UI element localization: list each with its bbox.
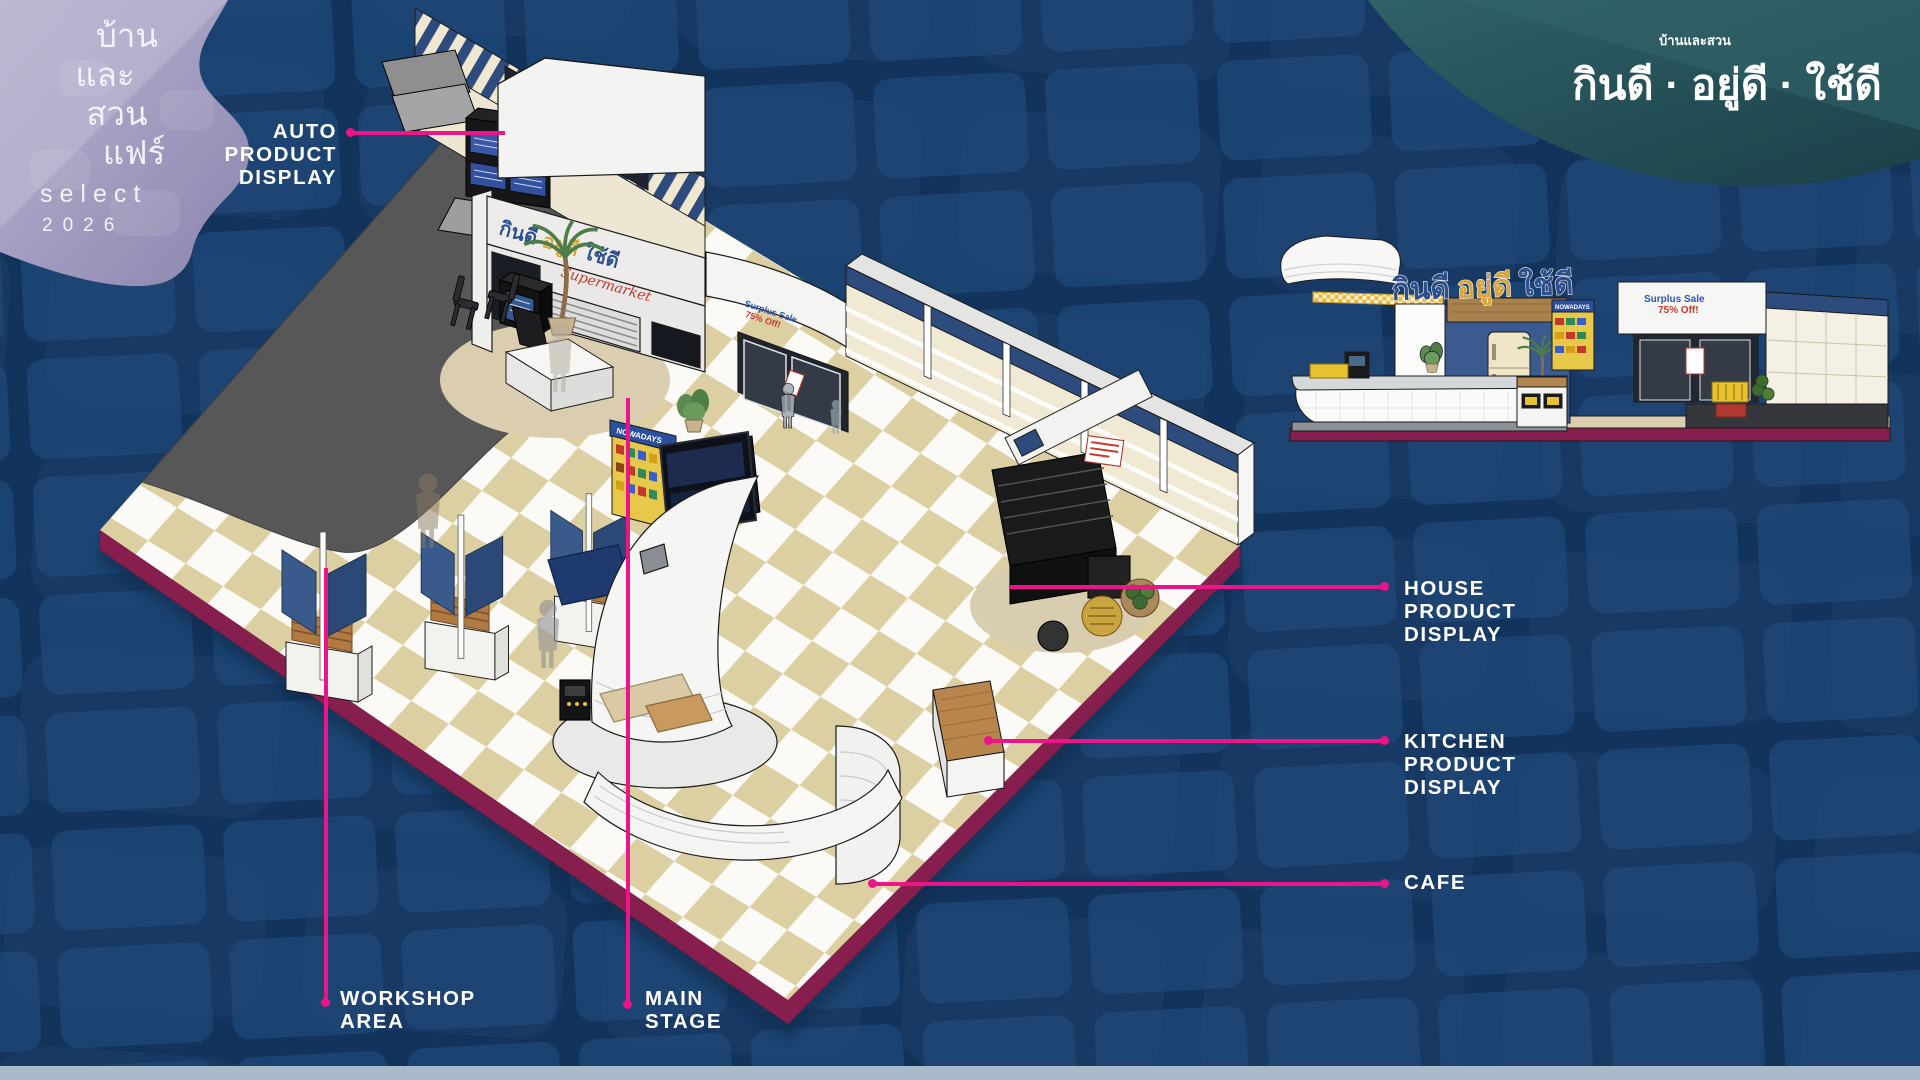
callout-line-main-stage — [626, 398, 630, 1004]
booth-plan-slide: { "logo_badge": { "thai_lines": ["บ้าน",… — [0, 0, 1920, 1080]
svg-text:NOWADAYS: NOWADAYS — [1555, 305, 1590, 311]
callout-label-line: PRODUCT — [1404, 600, 1517, 623]
callout-line-kitchen — [988, 739, 1385, 743]
callout-label-line: PRODUCT — [1404, 753, 1517, 776]
callout-label-line: HOUSE — [1404, 577, 1517, 600]
callout-label-line: DISPLAY — [1404, 623, 1517, 646]
logo-line: บ้าน — [40, 16, 214, 55]
logo-line: แฟร์ — [54, 133, 214, 172]
tagline-large: กินดี · อยู่ดี · ใช้ดี — [1538, 56, 1916, 114]
callout-line-cafe — [872, 882, 1385, 886]
callout-dot-kitchen-end — [1380, 736, 1389, 745]
callout-dot-workshop — [321, 998, 330, 1007]
callout-dot-cafe — [868, 879, 877, 888]
callout-cafe: CAFE — [1404, 871, 1466, 894]
callout-workshop-area: WORKSHOP AREA — [340, 987, 476, 1033]
callout-label-line: STAGE — [645, 1010, 722, 1033]
render-nowadays-shelf: NOWADAYS — [1552, 300, 1594, 370]
sale-sign — [1085, 436, 1124, 467]
event-logo-thai: บ้าน และ สวน แฟร์ — [14, 16, 214, 172]
callout-label-line: WORKSHOP — [340, 987, 476, 1010]
callout-label-line: DISPLAY — [1404, 776, 1517, 799]
render-basket — [1310, 364, 1348, 378]
callout-label-line: AREA — [340, 1010, 476, 1033]
callout-line-house — [1010, 585, 1385, 589]
logo-line: สวน — [20, 94, 214, 133]
callout-label-line: CAFE — [1404, 871, 1466, 894]
callout-dot-main-stage — [623, 1000, 632, 1009]
logo-select: select — [14, 180, 214, 209]
tagline-small: บ้านและสวน — [1640, 30, 1750, 51]
corn-basket — [1082, 596, 1122, 636]
event-logo: บ้าน และ สวน แฟร์ select 2026 — [14, 16, 214, 237]
render-wood-counter — [1517, 377, 1567, 427]
render-shelving — [1766, 292, 1888, 410]
callout-label-line: KITCHEN — [1404, 730, 1517, 753]
logo-year: 2026 — [14, 215, 214, 237]
footer-strip — [0, 1066, 1920, 1080]
callout-main-stage: MAIN STAGE — [645, 987, 722, 1033]
callout-dot-cafe-end — [1380, 879, 1389, 888]
building-tower — [498, 58, 705, 178]
logo-line: และ — [0, 55, 214, 94]
callout-kitchen-product-display: KITCHEN PRODUCT DISPLAY — [1404, 730, 1517, 799]
callout-line-workshop — [324, 568, 328, 1002]
callout-house-product-display: HOUSE PRODUCT DISPLAY — [1404, 577, 1517, 646]
callout-dot-auto — [346, 128, 355, 137]
callout-dot-house — [1380, 582, 1389, 591]
callout-label-line: MAIN — [645, 987, 722, 1010]
callout-dot-kitchen — [984, 736, 993, 745]
callout-line-auto — [350, 131, 505, 135]
render-register — [1345, 352, 1369, 378]
cash-register — [560, 680, 590, 720]
